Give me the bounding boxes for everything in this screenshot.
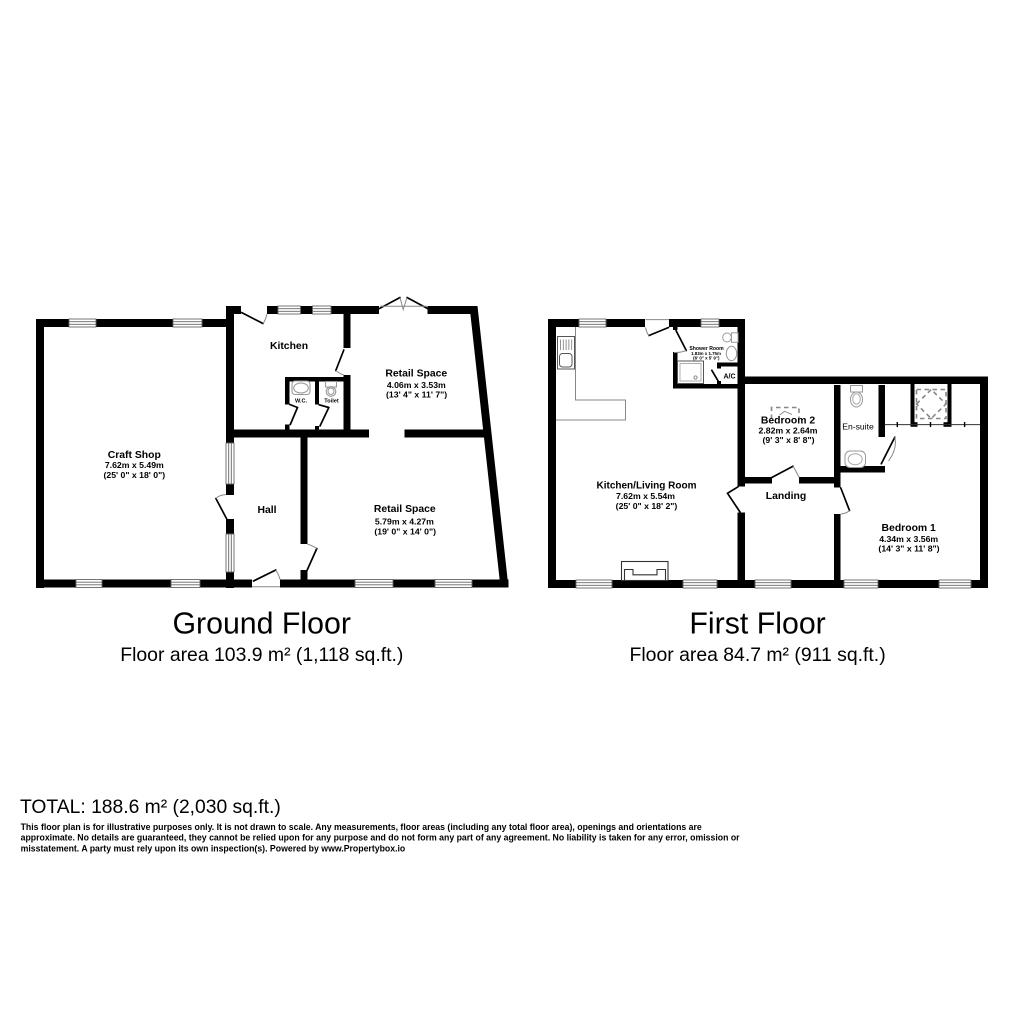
svg-text:Floor area 84.7 m² (911 sq.ft.: Floor area 84.7 m² (911 sq.ft.) (630, 644, 886, 666)
svg-text:Retail Space: Retail Space (374, 504, 436, 515)
svg-text:4.34m x 3.56m: 4.34m x 3.56m (879, 534, 938, 544)
svg-text:Craft Shop: Craft Shop (108, 450, 161, 461)
svg-text:(6' 0" x 5' 9"): (6' 0" x 5' 9") (693, 356, 720, 361)
svg-text:7.62m x 5.54m: 7.62m x 5.54m (616, 491, 675, 501)
svg-text:Bedroom 1: Bedroom 1 (882, 523, 936, 534)
svg-text:(19' 0" x 14' 0"): (19' 0" x 14' 0") (374, 527, 436, 537)
svg-text:(13' 4" x 11' 7"): (13' 4" x 11' 7") (386, 390, 447, 400)
svg-text:Hall: Hall (257, 505, 276, 516)
svg-text:(25' 0" x 18' 0"): (25' 0" x 18' 0") (103, 470, 165, 480)
svg-text:First Floor: First Floor (689, 607, 825, 640)
svg-text:En-suite: En-suite (842, 421, 874, 431)
svg-text:(25' 0" x 18' 2"): (25' 0" x 18' 2") (616, 501, 678, 511)
svg-text:(9' 3" x 8' 8"): (9' 3" x 8' 8") (763, 435, 815, 445)
svg-text:5.79m x 4.27m: 5.79m x 4.27m (375, 517, 434, 527)
svg-text:Toilet: Toilet (324, 399, 339, 405)
svg-text:W.C.: W.C. (295, 399, 308, 405)
svg-text:TOTAL: 188.6 m² (2,030 sq.ft.): TOTAL: 188.6 m² (2,030 sq.ft.) (20, 797, 281, 818)
svg-text:(14' 3" x 11' 8"): (14' 3" x 11' 8") (878, 544, 939, 554)
svg-text:Kitchen: Kitchen (270, 341, 308, 352)
svg-text:Kitchen/Living Room: Kitchen/Living Room (597, 481, 697, 492)
svg-text:misstatement. A party must rel: misstatement. A party must rely upon its… (21, 843, 406, 853)
svg-text:approximate. No details are gu: approximate. No details are guaranteed, … (21, 833, 741, 843)
svg-text:Floor area 103.9 m² (1,118 sq.: Floor area 103.9 m² (1,118 sq.ft.) (120, 644, 403, 666)
svg-text:2.82m x 2.64m: 2.82m x 2.64m (759, 426, 818, 436)
svg-text:Ground Floor: Ground Floor (172, 607, 351, 640)
svg-text:This floor plan is for illustr: This floor plan is for illustrative purp… (21, 822, 702, 832)
svg-text:A/C: A/C (723, 374, 735, 381)
svg-text:4.06m x 3.53m: 4.06m x 3.53m (387, 380, 446, 390)
svg-text:7.62m x 5.49m: 7.62m x 5.49m (105, 460, 164, 470)
svg-text:Landing: Landing (766, 491, 806, 502)
svg-text:Retail Space: Retail Space (385, 368, 447, 379)
